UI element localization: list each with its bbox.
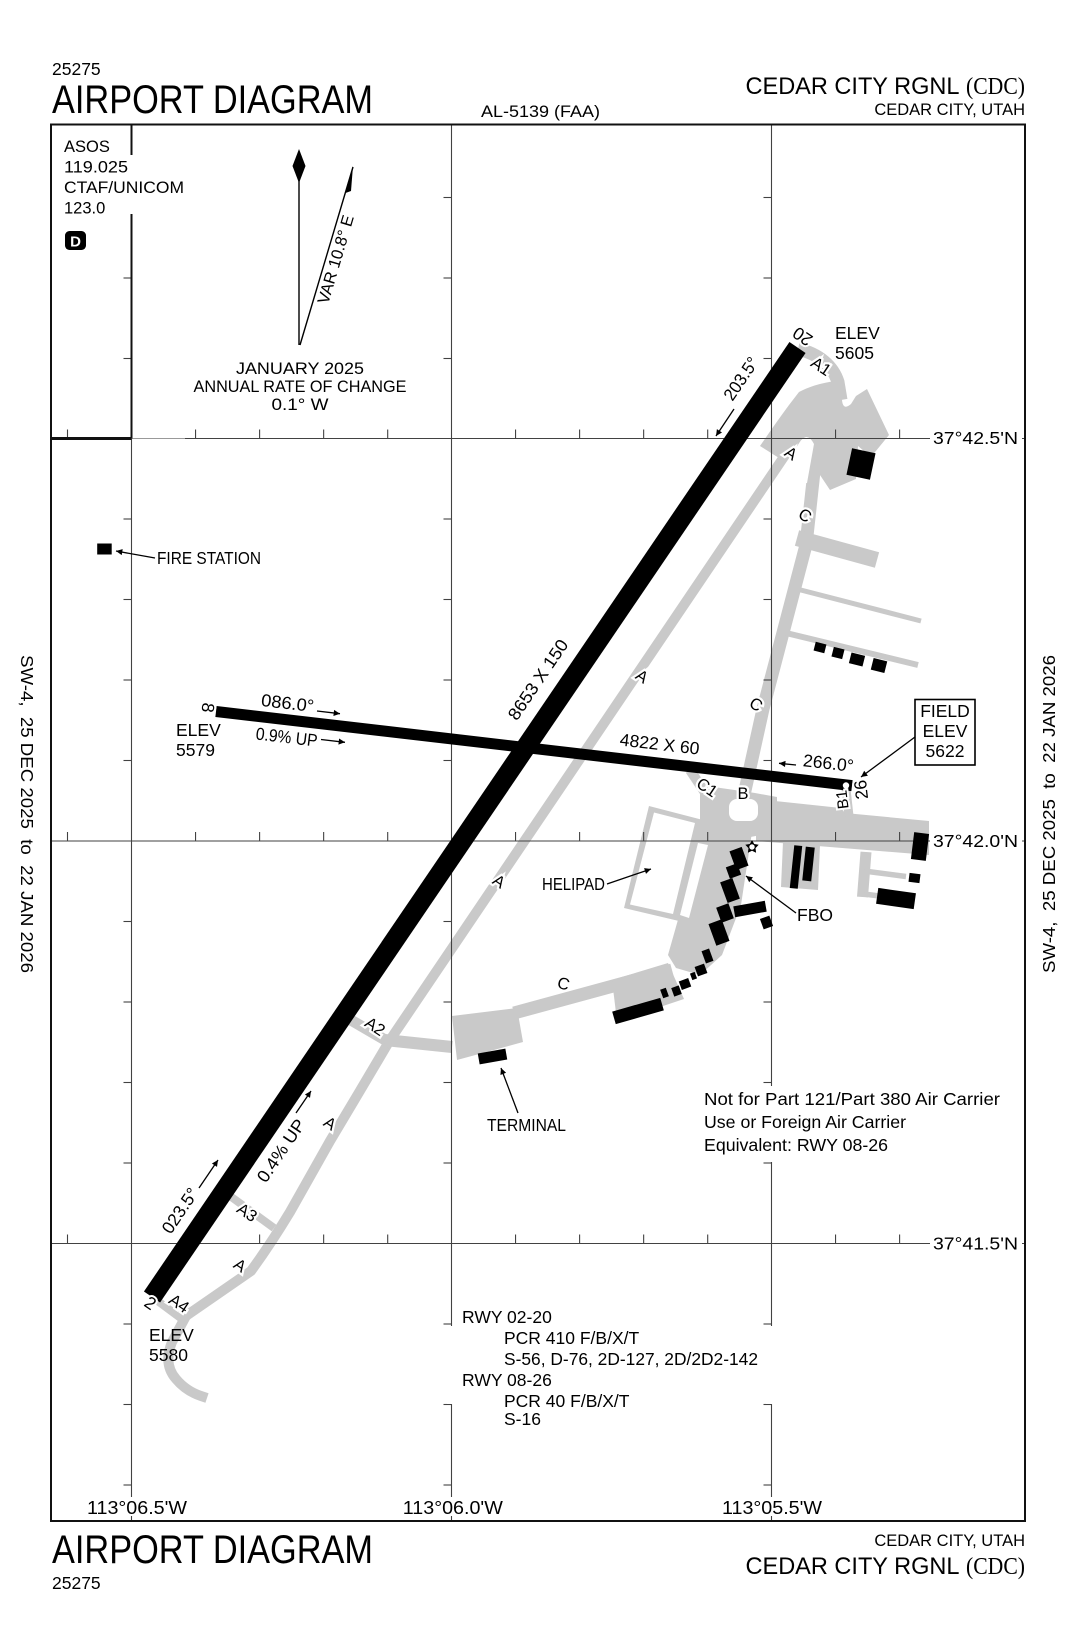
svg-text:PCR 410 F/B/X/T: PCR 410 F/B/X/T [504,1328,639,1348]
svg-text:CEDAR CITY RGNL: CEDAR CITY RGNL [746,1553,960,1580]
svg-text:FIELD: FIELD [920,701,970,721]
svg-text:AIRPORT DIAGRAM: AIRPORT DIAGRAM [52,1528,373,1572]
svg-text:FIRE STATION: FIRE STATION [157,548,261,568]
svg-text:PCR 40 F/B/X/T: PCR 40 F/B/X/T [504,1391,630,1411]
svg-text:113°06.5'W: 113°06.5'W [87,1498,187,1518]
svg-text:HELIPAD: HELIPAD [542,874,605,894]
svg-text:119.025: 119.025 [64,159,128,177]
svg-text:Equivalent: RWY 08-26: Equivalent: RWY 08-26 [704,1135,888,1155]
svg-text:123.0: 123.0 [64,200,105,218]
svg-text:RWY 02-20: RWY 02-20 [462,1307,552,1327]
svg-text:CEDAR CITY, UTAH: CEDAR CITY, UTAH [874,1532,1025,1550]
svg-text:(CDC): (CDC) [966,73,1025,100]
svg-text:B1: B1 [833,789,852,810]
svg-text:25275: 25275 [52,59,101,79]
svg-text:5622: 5622 [926,741,965,761]
svg-text:S-16: S-16 [504,1409,541,1429]
svg-text:SW-4, 25 DEC 2025 to 22 JAN: SW-4, 25 DEC 2025 to 22 JAN 2026 [17,655,37,973]
svg-text:Not for Part 121/Part 380 Air: Not for Part 121/Part 380 Air Carrier [704,1089,1000,1109]
svg-text:CEDAR CITY RGNL: CEDAR CITY RGNL [746,73,960,100]
svg-text:ELEV: ELEV [149,1325,194,1345]
svg-text:37°42.5'N: 37°42.5'N [933,428,1018,448]
svg-text:Use or Foreign Air Carrier: Use or Foreign Air Carrier [704,1112,906,1132]
svg-text:5580: 5580 [149,1345,188,1365]
svg-text:TERMINAL: TERMINAL [487,1115,566,1135]
svg-text:JANUARY 2025: JANUARY 2025 [236,360,364,378]
svg-text:ELEV: ELEV [835,323,880,343]
svg-text:26: 26 [850,779,872,801]
svg-text:5605: 5605 [835,343,874,363]
svg-text:37°41.5'N: 37°41.5'N [933,1234,1018,1254]
svg-text:SW-4, 25 DEC 2025 to 22 JAN: SW-4, 25 DEC 2025 to 22 JAN 2026 [1039,655,1059,973]
svg-text:RWY 08-26: RWY 08-26 [462,1370,552,1390]
svg-text:AIRPORT DIAGRAM: AIRPORT DIAGRAM [52,78,373,122]
svg-text:CTAF/UNICOM: CTAF/UNICOM [64,179,184,197]
svg-text:113°06.0'W: 113°06.0'W [403,1498,503,1518]
svg-text:S-56, D-76, 2D-127, 2D/2D2-142: S-56, D-76, 2D-127, 2D/2D2-142 [504,1349,758,1369]
svg-text:ELEV: ELEV [923,721,968,741]
svg-text:5579: 5579 [176,740,215,760]
svg-text:(CDC): (CDC) [966,1553,1025,1580]
svg-text:25275: 25275 [52,1573,101,1593]
svg-text:ELEV: ELEV [176,720,221,740]
svg-text:37°42.0'N: 37°42.0'N [933,831,1018,851]
svg-text:B: B [737,785,748,803]
svg-text:113°05.5'W: 113°05.5'W [722,1498,822,1518]
svg-text:ANNUAL RATE OF CHANGE: ANNUAL RATE OF CHANGE [194,378,407,396]
svg-text:CEDAR CITY, UTAH: CEDAR CITY, UTAH [874,101,1025,119]
svg-text:AL-5139 (FAA): AL-5139 (FAA) [481,103,600,121]
svg-text:0.1° W: 0.1° W [272,396,329,414]
svg-text:FBO: FBO [797,905,833,925]
svg-text:ASOS: ASOS [64,138,110,156]
svg-text:D: D [70,234,81,251]
